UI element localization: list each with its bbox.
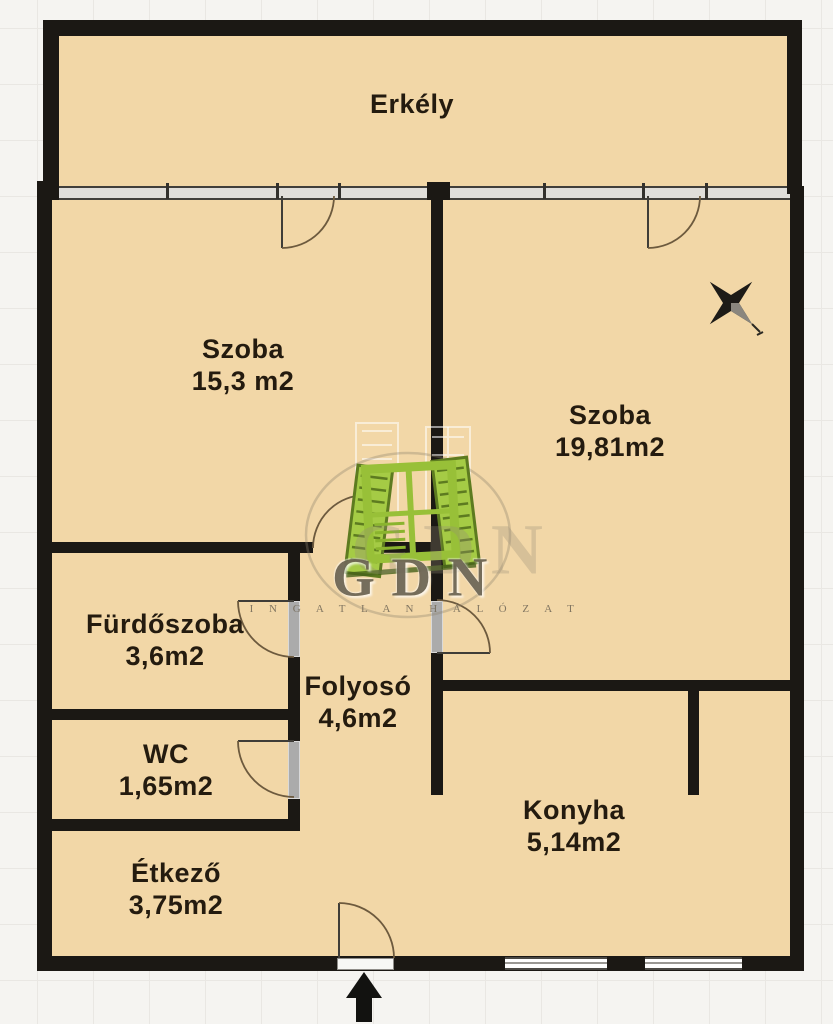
room-label-szoba-left: Szoba 15,3 m2 xyxy=(192,333,295,397)
wall-bathroom-right-1 xyxy=(288,548,300,601)
room-label-szoba-right: Szoba 19,81m2 xyxy=(555,399,665,463)
balcony-window xyxy=(52,186,790,200)
wall-balcony-right xyxy=(787,20,802,194)
room-label-furdoszoba: Fürdőszoba 3,6m2 xyxy=(86,608,244,672)
window-tick xyxy=(543,183,546,199)
wall-left xyxy=(37,181,52,971)
room-label-konyha: Konyha 5,14m2 xyxy=(523,794,625,858)
window-tick xyxy=(338,183,341,199)
room-label-folyoso: Folyosó 4,6m2 xyxy=(304,670,411,734)
door-opening-wc xyxy=(288,741,300,799)
wall-kitchen-partial xyxy=(688,691,699,795)
window-tick xyxy=(276,183,279,199)
wall-bathroom-right-2 xyxy=(288,657,300,741)
wall-balcony-left xyxy=(43,20,59,190)
window-tick xyxy=(705,183,708,199)
wall-junction-left xyxy=(37,181,59,200)
bottom-window-2 xyxy=(645,957,742,970)
wall-kitchen-top xyxy=(431,680,804,691)
entrance-door-sill xyxy=(337,958,394,970)
wall-bathroom-wc xyxy=(37,709,300,720)
entrance-arrow-icon xyxy=(341,970,389,1024)
room-label-etkezo: Étkező 3,75m2 xyxy=(129,857,224,921)
wall-bathroom-top-left xyxy=(37,542,313,553)
wall-balcony-top xyxy=(43,20,802,36)
watermark-brand: GDN xyxy=(332,546,504,609)
room-label-balcony: Erkély xyxy=(370,88,454,120)
window-tick xyxy=(642,183,645,199)
window-tick xyxy=(166,183,169,199)
watermark-network-label: I N G A T L A N H Á L Ó Z A T xyxy=(250,603,581,615)
room-label-wc: WC 1,65m2 xyxy=(119,738,214,802)
wall-right xyxy=(790,186,804,971)
wall-wc-bottom xyxy=(37,819,300,831)
bottom-window-1 xyxy=(505,957,607,970)
floor-plan: GDN GDN I N G A T L A N H Á L Ó Z A T Er… xyxy=(0,0,833,1024)
wall-center-lower xyxy=(431,653,443,795)
